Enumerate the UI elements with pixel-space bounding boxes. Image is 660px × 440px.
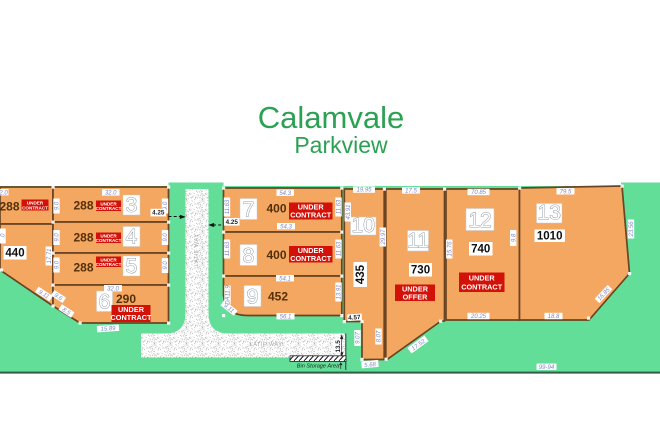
- svg-text:CONTRACT: CONTRACT: [96, 262, 122, 267]
- svg-text:CONTRACT: CONTRACT: [290, 254, 331, 263]
- svg-text:11.63: 11.63: [225, 241, 231, 256]
- svg-text:11: 11: [407, 230, 429, 253]
- svg-text:CONTRACT: CONTRACT: [22, 205, 48, 210]
- svg-text:UNDER: UNDER: [469, 274, 496, 283]
- svg-text:9.8: 9.8: [511, 233, 517, 242]
- svg-text:13: 13: [538, 202, 561, 225]
- svg-text:DA11.9: DA11.9: [226, 285, 232, 305]
- svg-text:99-94: 99-94: [539, 365, 555, 371]
- svg-text:8.07: 8.07: [377, 330, 383, 342]
- svg-text:79.5: 79.5: [560, 189, 572, 195]
- svg-text:70.85: 70.85: [471, 190, 487, 196]
- svg-text:Calamvale: Calamvale: [258, 100, 404, 135]
- svg-text:15.89: 15.89: [100, 326, 116, 333]
- svg-text:288: 288: [73, 261, 93, 275]
- svg-text:8: 8: [243, 245, 255, 268]
- svg-text:3: 3: [126, 194, 138, 217]
- svg-text:56.1: 56.1: [280, 314, 292, 320]
- svg-text:23.56: 23.56: [629, 221, 635, 238]
- svg-text:4.57: 4.57: [348, 314, 361, 322]
- svg-text:13.91: 13.91: [337, 284, 343, 299]
- svg-text:32.0: 32.0: [107, 286, 119, 292]
- svg-text:6: 6: [99, 291, 111, 314]
- svg-text:CONTRACT: CONTRACT: [96, 238, 122, 243]
- svg-text:1010: 1010: [537, 231, 563, 243]
- svg-text:15.76: 15.76: [447, 241, 453, 257]
- svg-text:Parkview: Parkview: [294, 132, 388, 158]
- svg-text:CONTRACT: CONTRACT: [96, 206, 122, 211]
- svg-text:43.91: 43.91: [346, 204, 352, 219]
- svg-text:4.25: 4.25: [152, 210, 165, 217]
- svg-text:OFFER: OFFER: [403, 293, 428, 302]
- svg-text:19.95: 19.95: [356, 188, 372, 194]
- svg-text:54.3: 54.3: [280, 224, 292, 230]
- svg-text:7: 7: [243, 199, 255, 222]
- svg-text:288: 288: [73, 199, 93, 213]
- svg-text:11.63: 11.63: [337, 241, 343, 256]
- svg-text:32.0: 32.0: [105, 191, 117, 197]
- svg-text:17.71: 17.71: [47, 248, 53, 263]
- svg-text:4: 4: [126, 226, 138, 249]
- svg-text:5: 5: [126, 255, 138, 278]
- svg-text:9.0: 9.0: [55, 260, 61, 269]
- svg-text:288: 288: [0, 200, 20, 214]
- svg-text:730: 730: [411, 265, 430, 277]
- svg-text:54.1: 54.1: [279, 276, 291, 282]
- svg-text:5.68: 5.68: [364, 362, 377, 369]
- svg-text:4.25: 4.25: [226, 219, 239, 226]
- svg-text:440: 440: [5, 248, 24, 260]
- svg-text:20.25: 20.25: [470, 314, 487, 320]
- svg-text:17.5: 17.5: [405, 189, 417, 195]
- svg-text:CONTRACT: CONTRACT: [290, 211, 331, 220]
- svg-text:Bin Storage Area: Bin Storage Area: [297, 363, 339, 369]
- svg-text:9.0: 9.0: [55, 233, 61, 242]
- svg-text:10: 10: [352, 214, 375, 237]
- svg-text:13.5: 13.5: [335, 340, 342, 353]
- svg-text:740: 740: [471, 244, 490, 256]
- svg-text:9: 9: [247, 286, 259, 309]
- svg-text:9.07: 9.07: [356, 332, 362, 344]
- svg-text:LATIF WAY: LATIF WAY: [250, 342, 283, 348]
- svg-text:11.63: 11.63: [337, 199, 343, 214]
- svg-text:9.0: 9.0: [163, 233, 169, 242]
- svg-text:9.0: 9.0: [55, 201, 61, 210]
- svg-text:11.63: 11.63: [225, 199, 231, 214]
- svg-text:12: 12: [468, 209, 491, 232]
- svg-text:54.3: 54.3: [279, 191, 291, 197]
- svg-text:435: 435: [355, 264, 367, 284]
- svg-text:400: 400: [266, 248, 286, 262]
- svg-text:LATIF WAY: LATIF WAY: [194, 234, 200, 267]
- svg-text:290: 290: [116, 292, 136, 306]
- svg-text:2.0: 2.0: [0, 190, 8, 196]
- svg-text:18.8: 18.8: [548, 314, 560, 320]
- svg-text:9.0: 9.0: [163, 261, 169, 270]
- svg-text:CONTRACT: CONTRACT: [461, 283, 502, 292]
- svg-text:.0: .0: [1, 233, 7, 239]
- svg-text:29.97: 29.97: [381, 229, 387, 246]
- svg-text:CONTRACT: CONTRACT: [111, 313, 152, 322]
- svg-text:400: 400: [266, 202, 286, 216]
- svg-text:452: 452: [268, 290, 288, 304]
- svg-text:288: 288: [73, 231, 93, 245]
